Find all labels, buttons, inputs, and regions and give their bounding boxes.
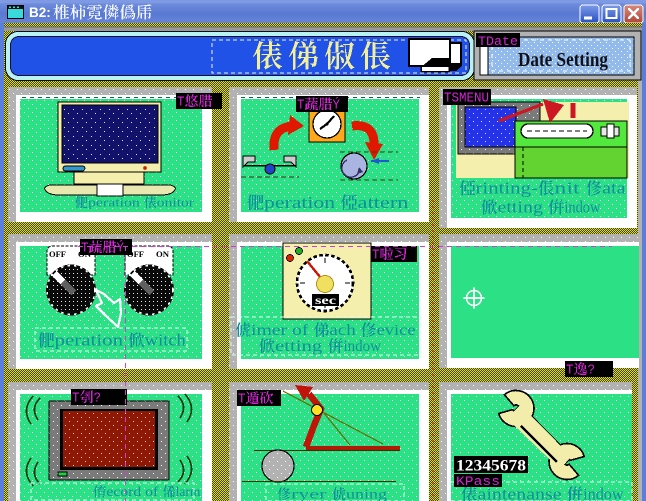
svg-text:T: T [177,96,185,111]
svg-text:?: ? [588,364,596,379]
svg-text:uning: uning [346,487,387,501]
svg-text:indow: indow [583,485,624,501]
svg-text:ecord of: ecord of [106,484,162,499]
svg-text:T: T [81,242,89,257]
svg-text:?: ? [94,392,102,407]
svg-text:indow: indow [344,338,382,355]
svg-text:peration: peration [55,331,129,350]
svg-text:etting: etting [275,338,328,355]
svg-text:imer of: imer of [251,322,313,339]
svg-text:nit: nit [554,179,585,198]
svg-text:ach: ach [329,322,360,339]
svg-text:larm: larm [176,484,201,499]
svg-text:rinting-: rinting- [476,179,538,198]
svg-text:12345678: 12345678 [456,458,526,475]
svg-text:ON: ON [156,249,170,259]
svg-text:attern: attern [358,193,410,212]
svg-text:etting: etting [498,198,548,217]
svg-text:sec: sec [315,293,337,307]
svg-text:peration: peration [264,193,341,212]
svg-text:TDate: TDate [478,34,518,49]
svg-text:ata: ata [602,179,626,198]
svg-text:T: T [238,393,246,408]
svg-text:T: T [372,249,380,264]
svg-text:TSMENU: TSMENU [444,92,489,107]
svg-text:Ý: Ý [117,241,125,257]
svg-text:onitor: onitor [157,195,195,210]
svg-text:Date Setting: Date Setting [518,49,608,71]
svg-text:KPass: KPass [456,474,500,489]
svg-text:B2:: B2: [29,5,51,20]
svg-text:witch: witch [145,331,187,350]
svg-text:Ý: Ý [333,98,341,114]
svg-text:T: T [566,364,574,379]
svg-text:indow: indow [564,198,600,217]
svg-text:T: T [72,392,80,407]
svg-text:peration: peration [88,195,144,210]
svg-text:evice: evice [377,322,416,339]
svg-text:ryer: ryer [291,487,332,501]
svg-text:OFF: OFF [49,249,66,259]
svg-text:T: T [297,99,305,114]
